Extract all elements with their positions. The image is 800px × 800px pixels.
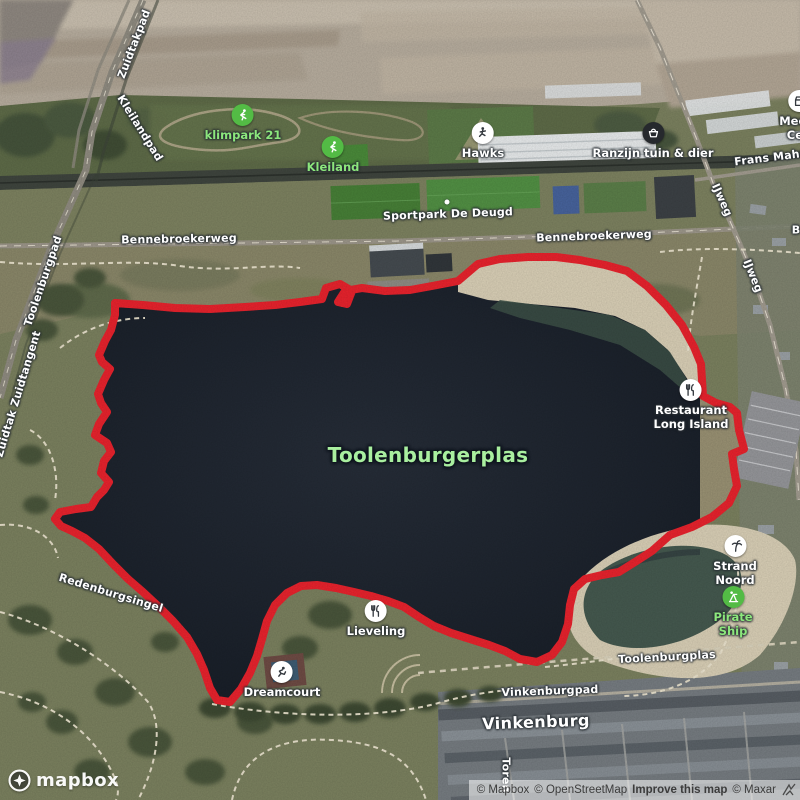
mapbox-logo[interactable]: mapbox [8, 769, 119, 792]
attribution-osm-link[interactable]: © OpenStreetMap [534, 784, 627, 796]
map-canvas[interactable] [0, 0, 800, 800]
satellite-imagery [0, 0, 800, 800]
mapbox-map-view: ZuidtakpadKleilandpadToolenburgpadZuidta… [0, 0, 800, 800]
attribution-mapbox-link[interactable]: © Mapbox [477, 784, 530, 796]
maxar-logo-icon [782, 783, 796, 797]
mapbox-logo-text: mapbox [36, 770, 119, 791]
attribution-bar: © Mapbox © OpenStreetMap Improve this ma… [469, 780, 800, 800]
mapbox-logo-icon [8, 769, 31, 792]
attribution-maxar-link[interactable]: © Maxar [732, 784, 776, 796]
improve-this-map-link[interactable]: Improve this map [632, 784, 727, 796]
